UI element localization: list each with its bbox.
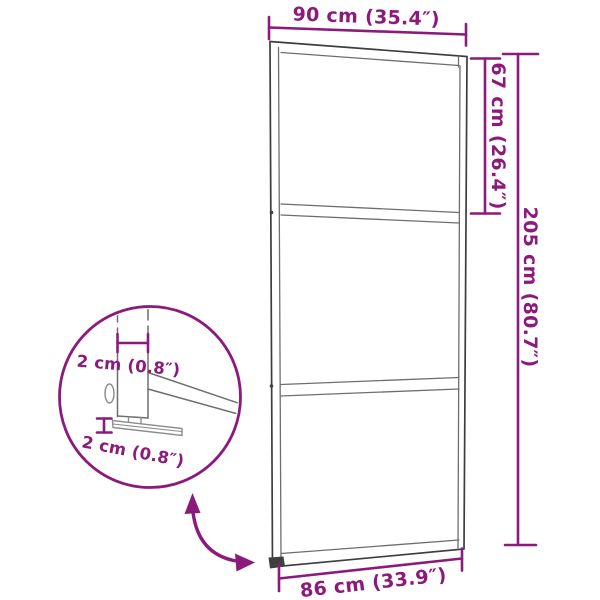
zoom-arrow-head-right (235, 554, 255, 572)
zoom-reference-arrow (185, 493, 256, 572)
dimension-top-width-label: 90 cm (35.4″) (292, 3, 440, 30)
door-outline (270, 42, 467, 568)
dimension-upper-height-label: 67 cm (26.4″) (487, 62, 509, 209)
door-connector-dot-upper (270, 211, 274, 215)
detail-screw-hole (105, 384, 114, 403)
door-floor-guide (269, 557, 286, 569)
zoom-arrow-head-up (185, 493, 201, 514)
sliding-door-drawing (269, 42, 468, 569)
detail-zoom-circle: 2 cm (0.8″) 2 cm (0.8″) (60, 306, 242, 488)
dimension-total-height-label: 205 cm (80.7″) (519, 207, 541, 368)
door-connector-dot-lower (270, 384, 274, 388)
diagram-canvas: 90 cm (35.4″) 67 cm (26.4″) 205 cm (80.7… (0, 0, 600, 600)
zoom-arrow-arc (193, 512, 236, 561)
product-dimension-diagram: 90 cm (35.4″) 67 cm (26.4″) 205 cm (80.7… (0, 0, 600, 600)
